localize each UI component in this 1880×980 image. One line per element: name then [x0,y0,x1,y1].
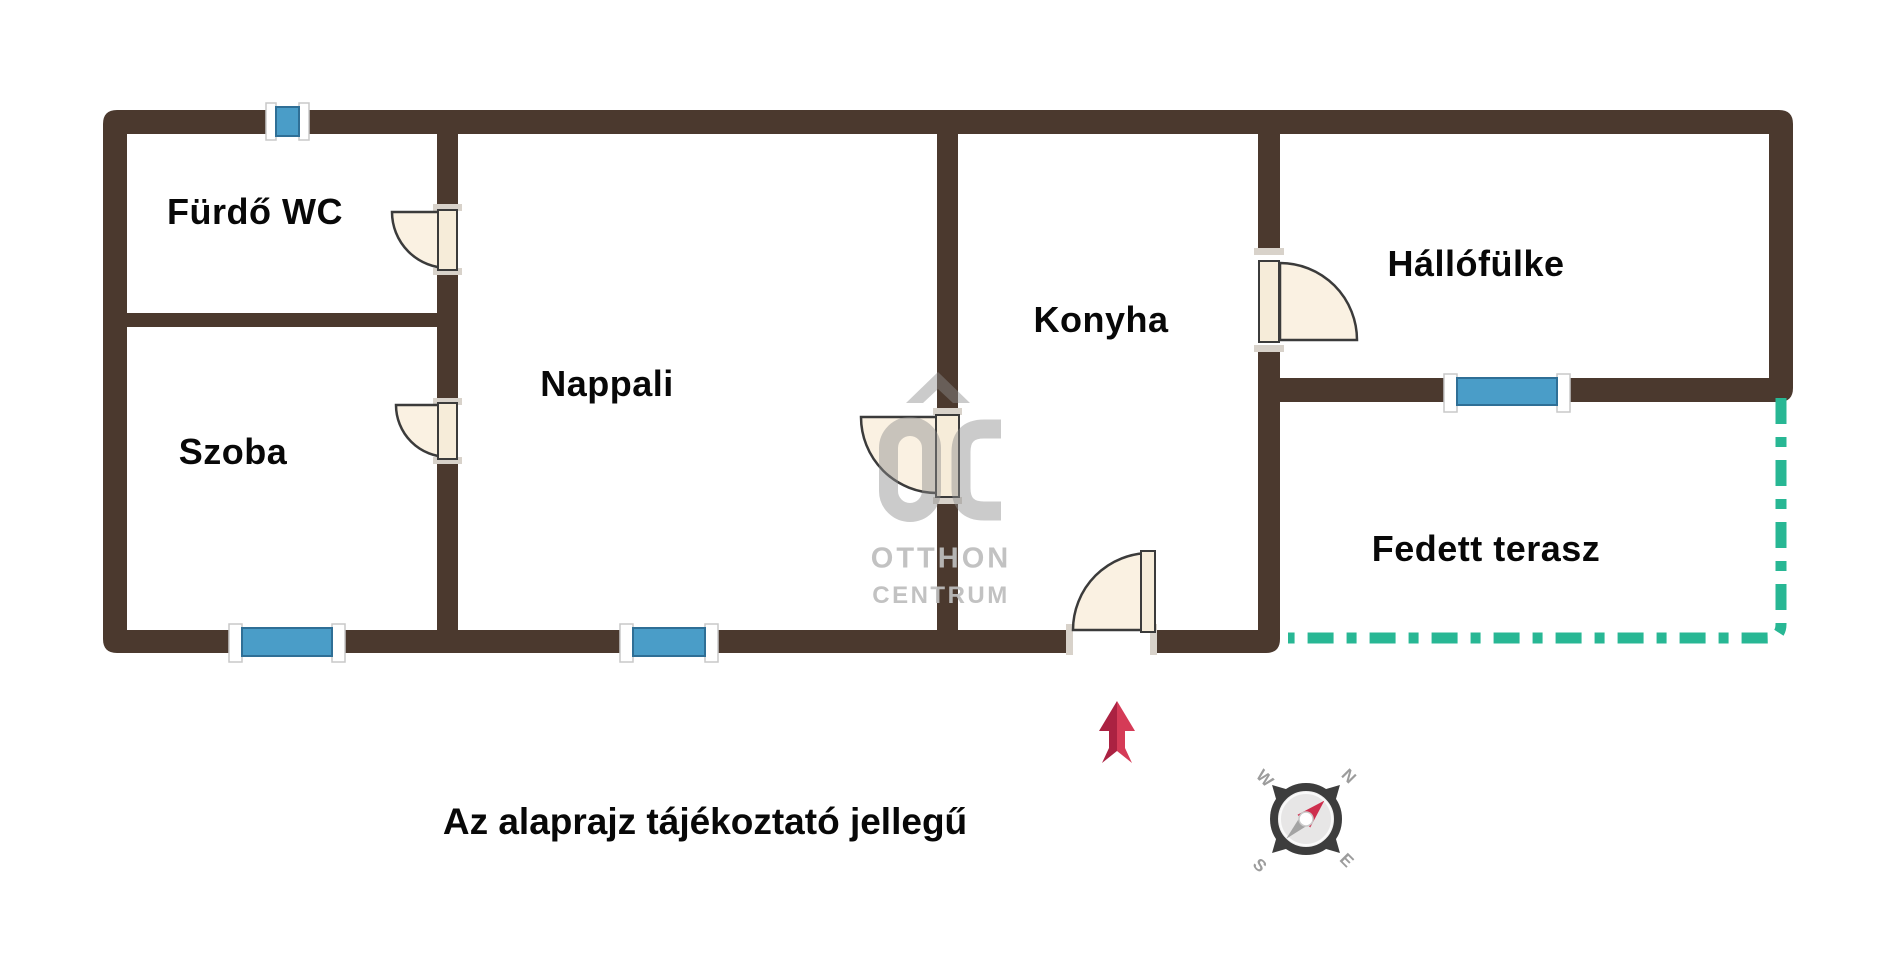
window-hallofulke-bottom [1444,374,1570,412]
room-label-nappali: Nappali [540,363,674,405]
watermark-letter-c [961,429,1001,511]
window-furdo-top [266,103,309,140]
floorplan-canvas: N E S W Fürdő WC Szoba Nappali Konyha Há… [0,0,1880,980]
window-nappali-bottom [620,624,718,662]
wall-szoba-nappali-lower [437,457,458,630]
door-gap-entrance [1073,630,1150,654]
wall-szoba-nappali-middle [437,268,458,405]
compass-label-n: N [1338,765,1360,787]
watermark-brand-otthon: OTTHON [871,543,1011,576]
door-entrance-konyha [1073,551,1155,632]
compass-label-s: S [1249,855,1270,876]
door-jamb-tabs [433,204,1284,655]
door-furdo [392,210,457,270]
wall-nappali-konyha-upper [937,134,958,415]
entrance-arrow-icon [1099,701,1135,763]
door-szoba [396,403,457,459]
watermark-brand-centrum: CENTRUM [872,582,1010,610]
room-label-szoba: Szoba [179,431,288,473]
room-label-fedett-terasz: Fedett terasz [1372,528,1601,570]
wall-furdo-nappali-upper [437,134,458,212]
window-szoba-bottom [229,624,345,662]
compass-icon: N E S W [1206,723,1400,917]
room-label-furdo-wc: Fürdő WC [167,191,343,233]
compass-label-e: E [1336,850,1357,871]
door-hallofulke [1259,261,1357,342]
disclaimer-note: Az alaprajz tájékoztató jellegű [443,801,967,843]
room-label-hallofulke: Hállófülke [1387,243,1564,285]
wall-furdo-szoba [127,313,437,327]
room-label-konyha: Konyha [1033,299,1168,341]
terrace-dashed-boundary [1288,398,1781,638]
